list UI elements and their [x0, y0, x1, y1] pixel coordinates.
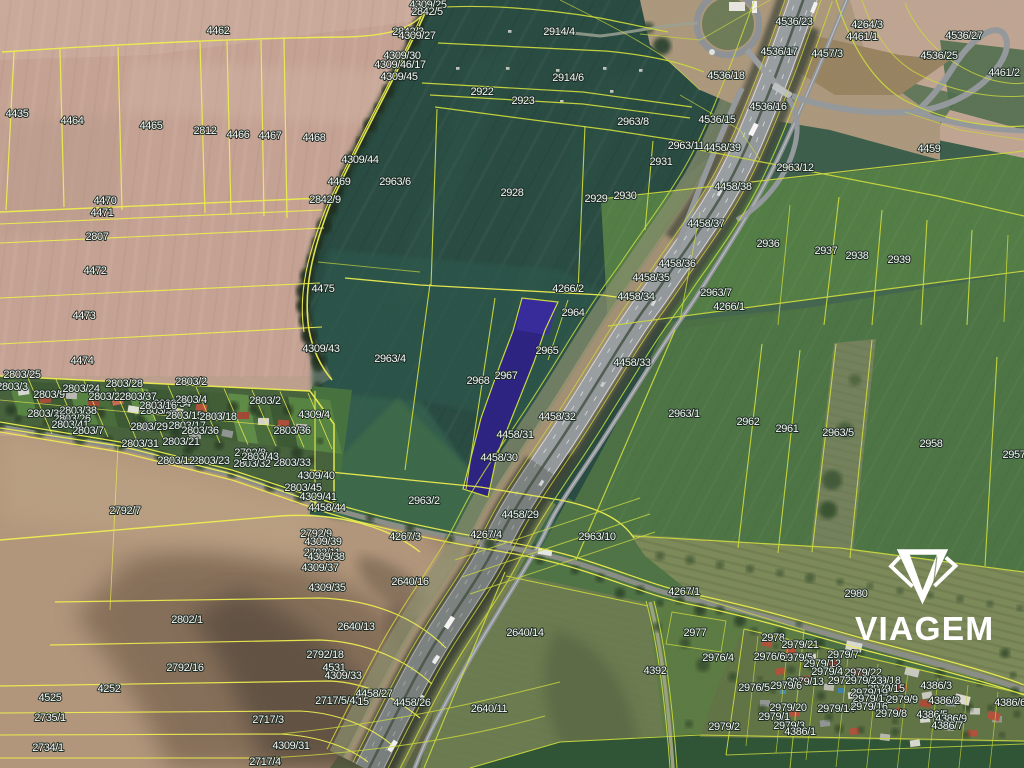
svg-text:VIAGEM: VIAGEM — [855, 611, 994, 648]
